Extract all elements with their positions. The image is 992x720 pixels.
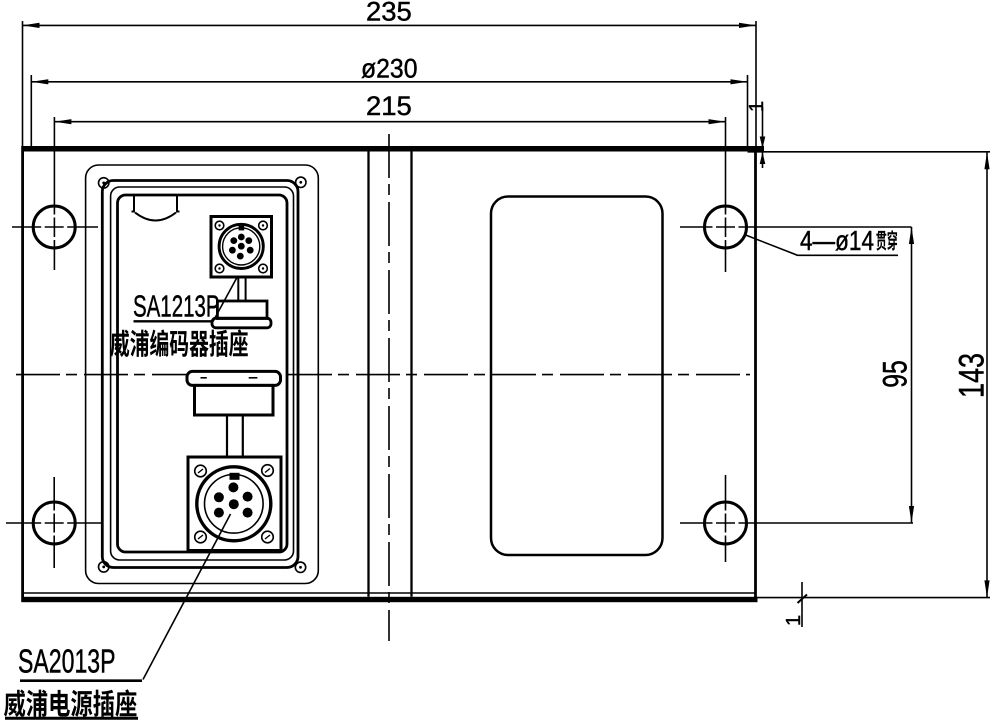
- svg-text:SA2013P: SA2013P: [18, 643, 116, 680]
- svg-text:SA1213P: SA1213P: [133, 289, 220, 324]
- svg-text:1: 1: [746, 101, 768, 112]
- svg-text:235: 235: [366, 0, 412, 27]
- svg-text:4—ø14: 4—ø14: [800, 225, 874, 256]
- svg-text:215: 215: [366, 91, 412, 121]
- svg-text:95: 95: [877, 360, 915, 388]
- svg-text:143: 143: [952, 353, 992, 398]
- svg-text:ø230: ø230: [361, 54, 418, 84]
- svg-text:1: 1: [783, 615, 805, 626]
